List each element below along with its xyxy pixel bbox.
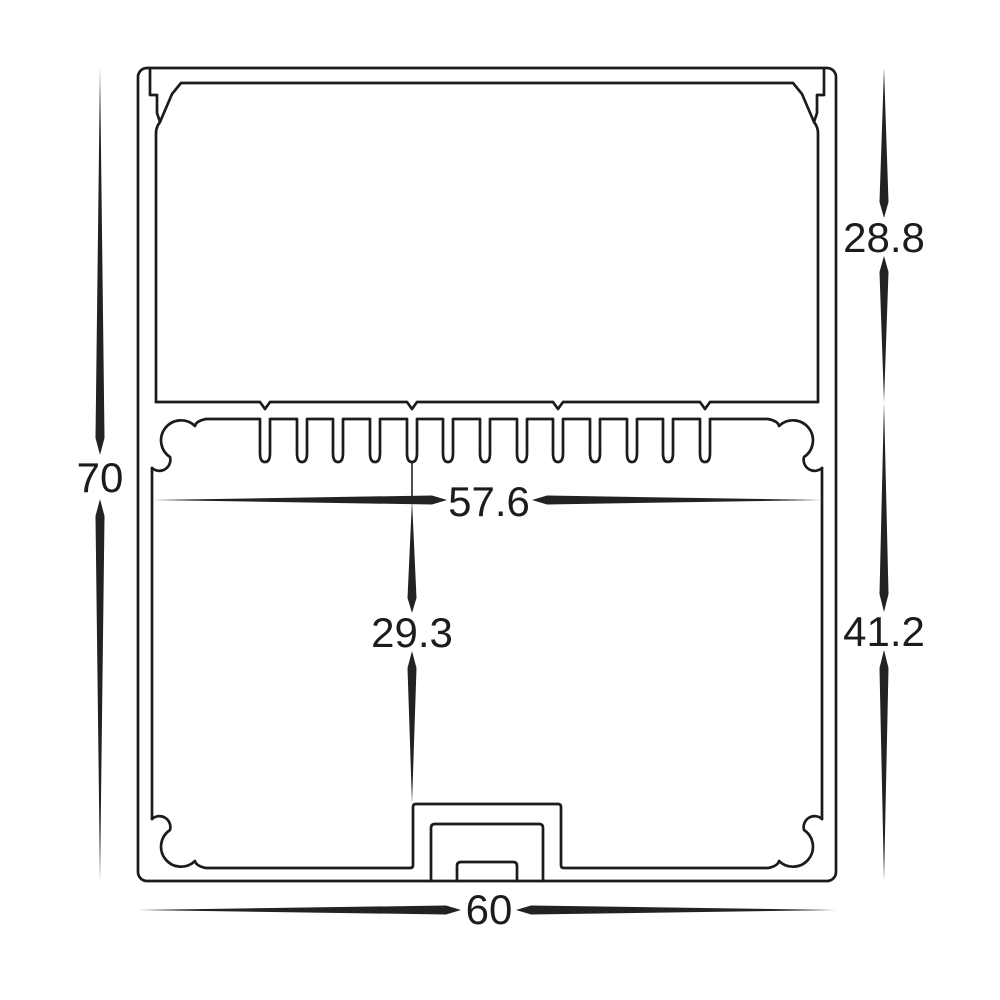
dimension-upper-section-height: 28.8 xyxy=(843,68,925,402)
profile-cross-section-diagram: 70 28.8 41.2 57.6 29.3 xyxy=(0,0,1000,1000)
dim-label-inner-cavity-height: 29.3 xyxy=(371,609,453,656)
dim-arrow-up xyxy=(408,500,417,613)
profile-outline-group xyxy=(138,68,836,881)
outer-profile-boundary xyxy=(138,68,836,881)
dimension-overall-height: 70 xyxy=(77,68,124,881)
dimension-inner-cavity-height: 29.3 xyxy=(371,463,453,804)
divider-top-line-with-notches xyxy=(156,402,818,409)
floor-inner-line-and-bottom-screw-bosses xyxy=(152,804,822,868)
dim-arrow-down xyxy=(408,651,417,804)
dim-arrow-up xyxy=(96,68,105,455)
mounting-channel-cavity xyxy=(431,824,543,881)
dim-arrow-right xyxy=(516,906,836,915)
dim-arrow-down xyxy=(880,256,889,402)
dimension-inner-width: 57.6 xyxy=(152,478,822,525)
dim-arrow-left xyxy=(152,496,447,505)
dim-label-overall-height: 70 xyxy=(77,454,124,501)
dim-arrow-up xyxy=(880,68,889,218)
dim-label-overall-width: 60 xyxy=(466,886,513,933)
dim-arrow-right xyxy=(532,496,822,505)
dim-arrow-left xyxy=(138,906,461,915)
technical-drawing-canvas: 70 28.8 41.2 57.6 29.3 xyxy=(0,0,1000,1000)
heatsink-fins-and-top-screw-bosses xyxy=(152,419,822,471)
dim-label-upper-section-height: 28.8 xyxy=(843,214,925,261)
diffuser-clip-and-ceiling-line xyxy=(150,68,824,122)
dim-label-lower-section-height: 41.2 xyxy=(843,608,925,655)
dimension-overall-width: 60 xyxy=(138,886,836,933)
upper-wall-inner-left xyxy=(156,122,160,402)
mounting-channel-tongue xyxy=(457,862,517,881)
dim-arrow-down xyxy=(880,650,889,881)
upper-wall-inner-right xyxy=(814,122,818,402)
dim-arrow-up xyxy=(880,402,889,612)
dim-label-inner-width: 57.6 xyxy=(448,478,530,525)
dimension-lower-section-height: 41.2 xyxy=(843,402,925,881)
dim-arrow-down xyxy=(96,499,105,881)
